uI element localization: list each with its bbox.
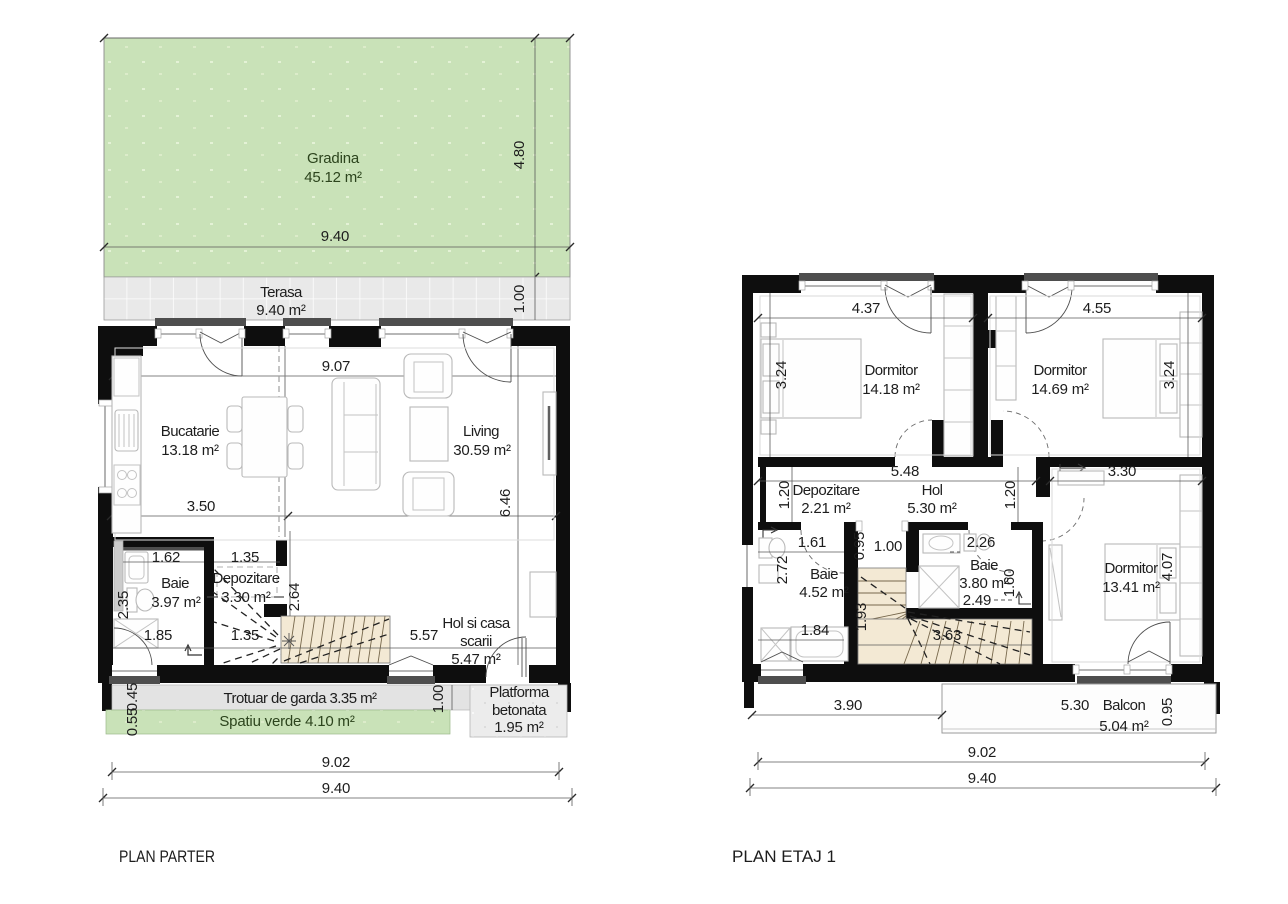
svg-text:Hol si casa: Hol si casa [442,615,511,632]
svg-text:3.30 m²: 3.30 m² [221,589,271,606]
svg-text:4.80: 4.80 [511,141,528,169]
svg-text:0.45: 0.45 [124,683,141,711]
svg-text:1.35: 1.35 [231,627,259,644]
svg-text:13.41 m²: 13.41 m² [1102,579,1160,596]
svg-text:Dormitor: Dormitor [1104,560,1158,577]
svg-text:2.35: 2.35 [115,591,132,619]
svg-text:1.62: 1.62 [152,549,180,566]
svg-text:1.00: 1.00 [511,285,528,313]
svg-text:0.55: 0.55 [124,708,141,736]
svg-text:Dormitor: Dormitor [1033,362,1087,379]
svg-text:9.07: 9.07 [322,358,350,375]
svg-text:1.20: 1.20 [1002,481,1019,509]
svg-text:13.18 m²: 13.18 m² [161,442,219,459]
svg-text:3.90: 3.90 [834,697,862,714]
svg-text:1.85: 1.85 [144,627,172,644]
svg-text:4.07: 4.07 [1159,553,1176,581]
svg-text:3.24: 3.24 [1161,361,1178,389]
svg-text:1.35: 1.35 [231,549,259,566]
svg-text:9.40: 9.40 [322,780,350,797]
svg-text:4.37: 4.37 [852,300,880,317]
svg-text:Bucatarie: Bucatarie [161,423,220,440]
svg-text:3.50: 3.50 [187,498,215,515]
svg-text:5.57: 5.57 [410,627,438,644]
svg-text:Platforma: Platforma [489,684,549,701]
svg-text:Balcon: Balcon [1103,697,1146,714]
svg-text:Living: Living [463,423,499,440]
svg-text:Terasa: Terasa [260,284,303,301]
svg-text:5.48: 5.48 [891,463,919,480]
svg-text:1.20: 1.20 [776,481,793,509]
svg-text:9.02: 9.02 [322,754,350,771]
svg-text:1.60: 1.60 [1001,569,1018,597]
svg-text:9.40 m²: 9.40 m² [256,302,306,319]
svg-text:5.30: 5.30 [1061,697,1089,714]
svg-text:0.95: 0.95 [851,532,868,560]
svg-text:scarii: scarii [460,633,492,650]
svg-text:3.97 m²: 3.97 m² [151,594,201,611]
svg-text:2.21 m²: 2.21 m² [801,500,851,517]
svg-text:Spatiu verde 4.10 m²: Spatiu verde 4.10 m² [219,713,354,730]
svg-text:1.95 m²: 1.95 m² [494,719,544,736]
svg-text:9.40: 9.40 [321,228,349,245]
svg-text:2.49: 2.49 [963,592,991,609]
svg-text:2.72: 2.72 [774,556,791,584]
svg-text:Dormitor: Dormitor [864,362,918,379]
svg-text:9.02: 9.02 [968,744,996,761]
svg-text:14.18 m²: 14.18 m² [862,381,920,398]
svg-text:4.52 m²: 4.52 m² [799,584,849,601]
svg-text:Baie: Baie [161,575,189,592]
svg-text:1.93: 1.93 [853,603,870,631]
svg-text:30.59 m²: 30.59 m² [453,442,511,459]
svg-text:2.26: 2.26 [967,534,995,551]
svg-text:3.30: 3.30 [1108,463,1136,480]
svg-text:1.61: 1.61 [798,534,826,551]
svg-text:1.00: 1.00 [430,685,447,713]
svg-text:3.24: 3.24 [773,361,790,389]
svg-text:14.69 m²: 14.69 m² [1031,381,1089,398]
svg-text:Baie: Baie [810,566,838,583]
svg-text:45.12 m²: 45.12 m² [304,169,362,186]
svg-text:Gradina: Gradina [307,150,360,167]
svg-text:5.30 m²: 5.30 m² [907,500,957,517]
svg-text:Baie: Baie [970,557,998,574]
svg-text:Depozitare: Depozitare [792,482,859,499]
svg-text:2.64: 2.64 [286,583,303,611]
svg-text:4.55: 4.55 [1083,300,1111,317]
svg-text:Trotuar de garda 3.35 m²: Trotuar de garda 3.35 m² [224,690,378,707]
svg-text:1.84: 1.84 [801,622,829,639]
svg-text:betonata: betonata [492,702,547,719]
svg-text:PLAN ETAJ 1: PLAN ETAJ 1 [732,848,836,866]
svg-text:6.46: 6.46 [497,489,514,517]
svg-text:1.00: 1.00 [874,538,902,555]
svg-text:9.40: 9.40 [968,770,996,787]
svg-text:5.04 m²: 5.04 m² [1099,718,1149,735]
svg-text:PLAN PARTER: PLAN PARTER [119,848,215,866]
svg-text:0.95: 0.95 [1159,698,1176,726]
svg-text:Depozitare: Depozitare [212,570,279,587]
svg-text:3.63: 3.63 [933,627,961,644]
svg-text:Hol: Hol [922,482,943,499]
